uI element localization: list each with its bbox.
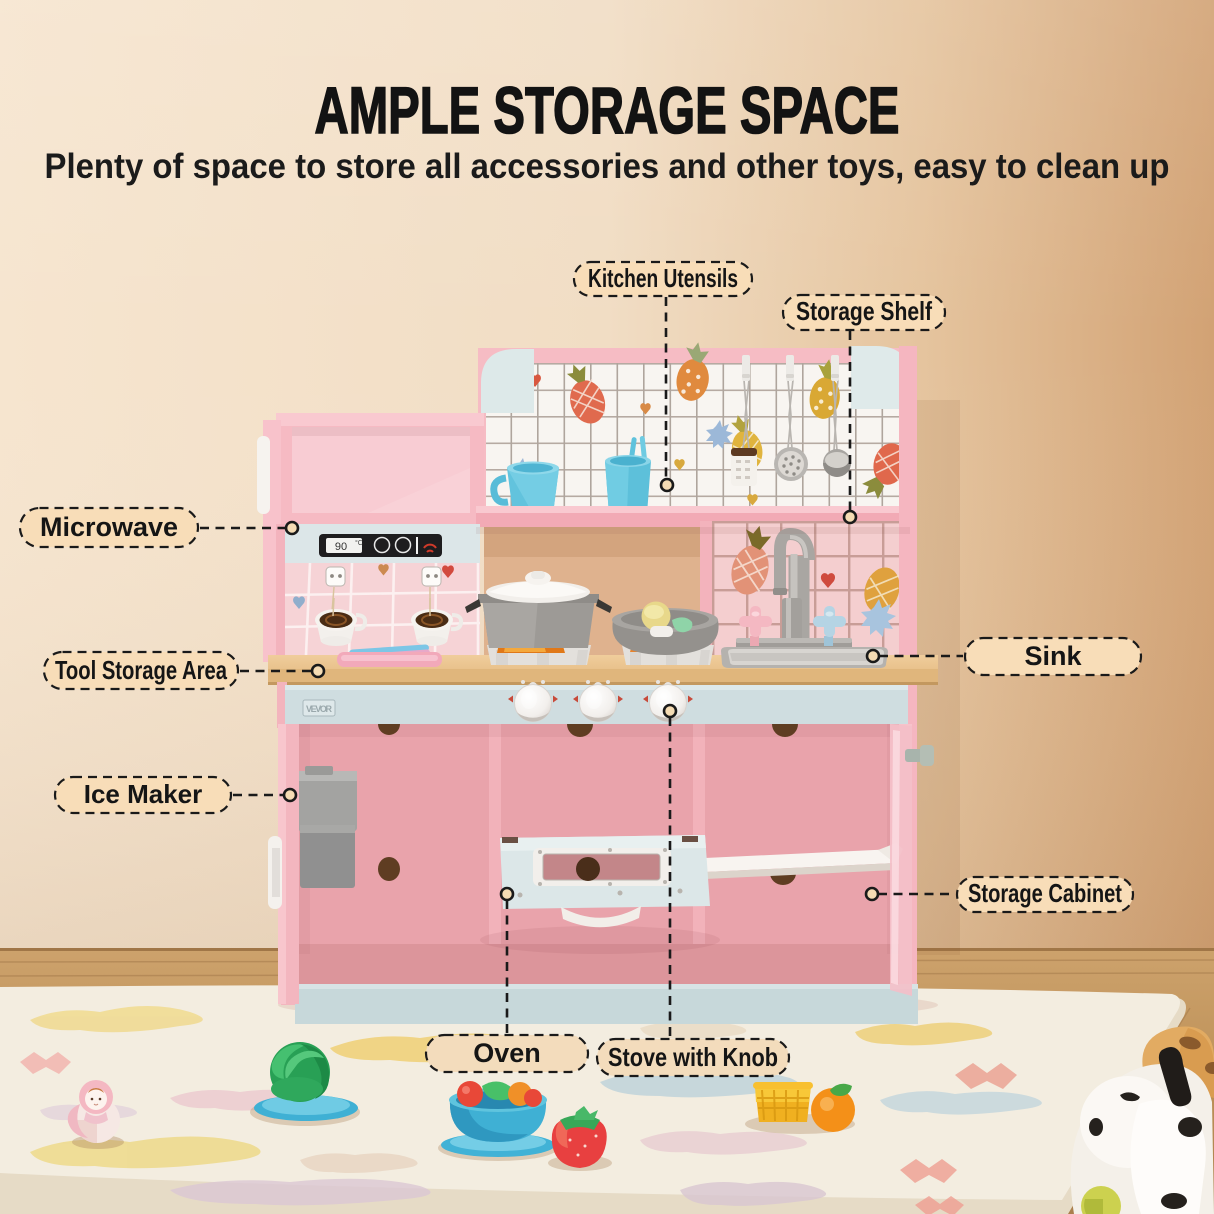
svg-text:Ice Maker: Ice Maker [84, 779, 203, 809]
svg-text:Kitchen Utensils: Kitchen Utensils [588, 263, 738, 293]
svg-text:°C: °C [355, 539, 363, 547]
svg-text:Tool Storage Area: Tool Storage Area [55, 655, 227, 685]
svg-text:Microwave: Microwave [40, 512, 178, 542]
svg-text:90: 90 [335, 541, 347, 553]
svg-text:Stove with Knob: Stove with Knob [608, 1042, 778, 1072]
svg-text:Sink: Sink [1024, 641, 1082, 671]
svg-text:Storage Shelf: Storage Shelf [796, 296, 932, 326]
svg-text:AMPLE STORAGE SPACE: AMPLE STORAGE SPACE [315, 73, 900, 147]
svg-text:Storage Cabinet: Storage Cabinet [968, 878, 1122, 908]
svg-text:VEVOR: VEVOR [306, 704, 333, 714]
svg-text:Oven: Oven [473, 1038, 541, 1068]
svg-text:Plenty of space to store all a: Plenty of space to store all accessories… [45, 147, 1170, 186]
